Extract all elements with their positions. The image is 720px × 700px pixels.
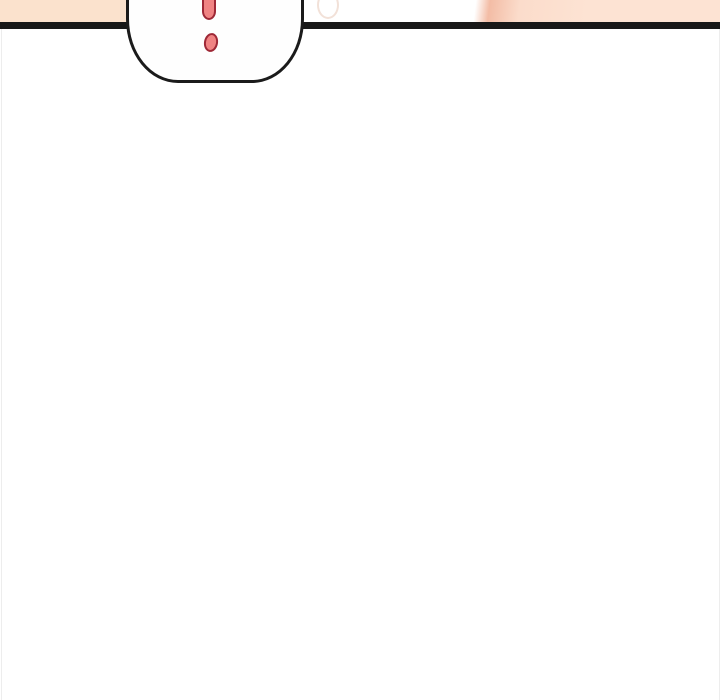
panel-art-skin-left	[0, 0, 132, 23]
speech-bubble	[126, 0, 304, 83]
page-edge-left	[1, 29, 2, 700]
comic-page	[0, 0, 720, 700]
exclamation-mark-dot	[202, 32, 219, 53]
background-oval-doodle	[317, 0, 339, 19]
panel-border-line	[0, 22, 720, 29]
panel-art-skin-right	[472, 0, 720, 23]
exclamation-mark-bar	[202, 0, 216, 20]
